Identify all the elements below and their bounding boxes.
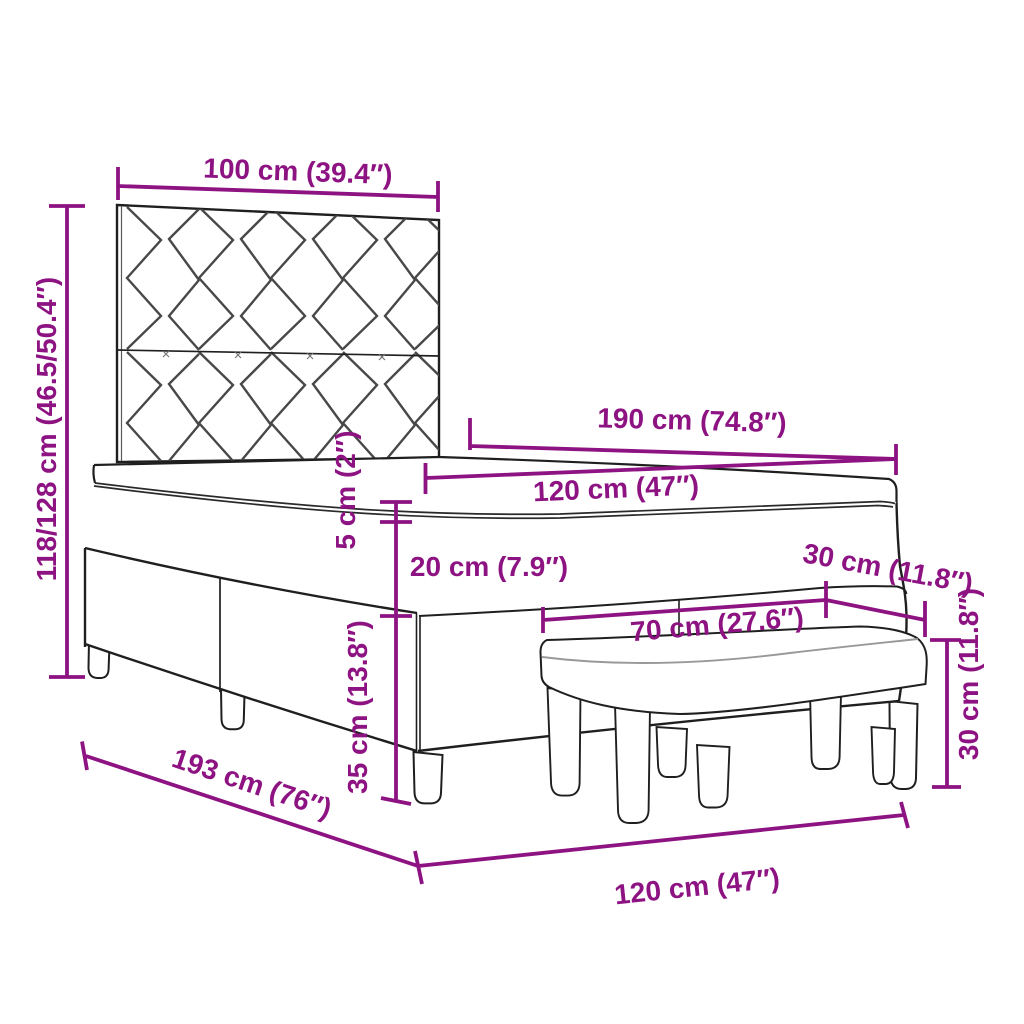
svg-text:120 cm (47″): 120 cm (47″) bbox=[613, 862, 781, 910]
svg-text:5 cm (2″): 5 cm (2″) bbox=[330, 430, 361, 549]
svg-text:30 cm (11.8″): 30 cm (11.8″) bbox=[953, 588, 984, 760]
svg-text:20 cm (7.9″): 20 cm (7.9″) bbox=[410, 551, 568, 582]
svg-text:100 cm (39.4″): 100 cm (39.4″) bbox=[203, 153, 393, 191]
svg-text:35 cm (13.8″): 35 cm (13.8″) bbox=[342, 620, 373, 794]
svg-text:190 cm (74.8″): 190 cm (74.8″) bbox=[597, 402, 787, 438]
svg-text:118/128 cm (46.5/50.4″): 118/128 cm (46.5/50.4″) bbox=[31, 277, 62, 582]
